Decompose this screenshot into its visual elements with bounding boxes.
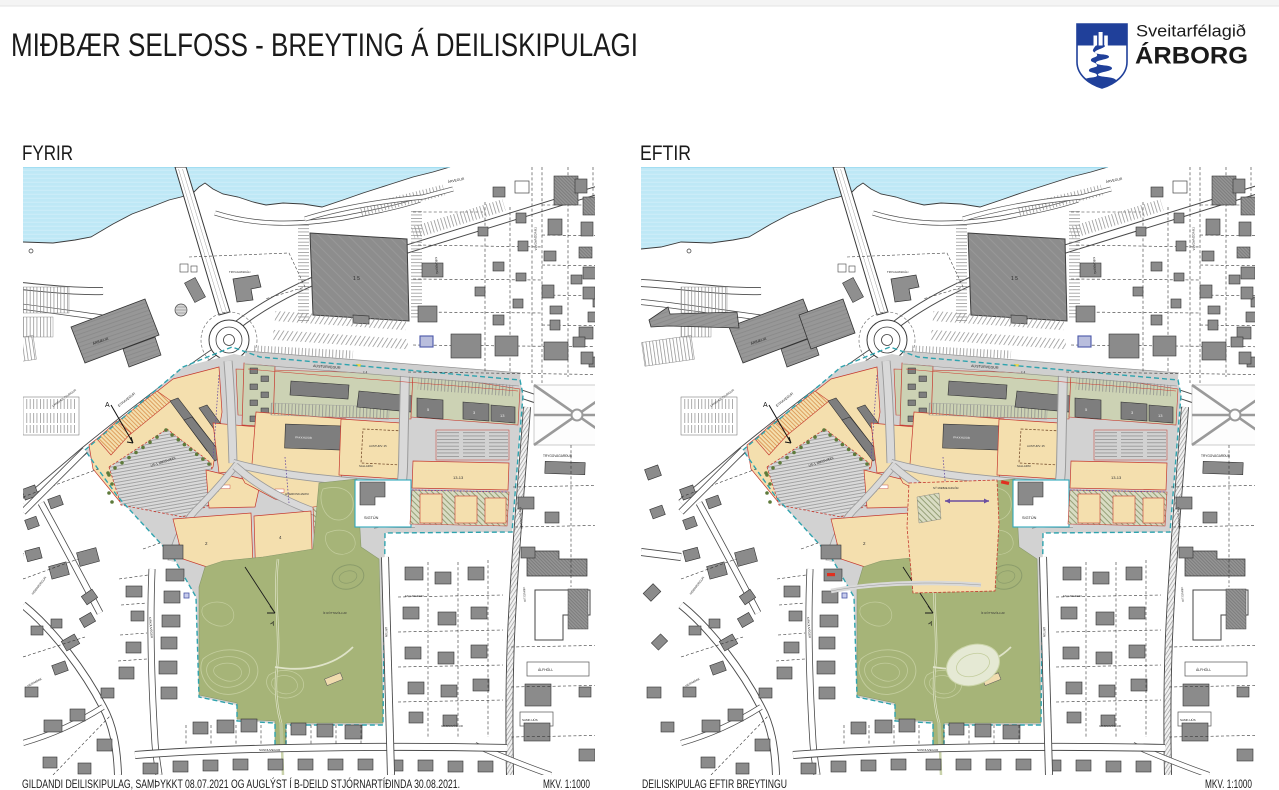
svg-text:TRYGGVAGARÐUR: TRYGGVAGARÐUR (543, 454, 573, 458)
svg-text:13-13: 13-13 (453, 475, 464, 480)
svg-text:Sveitarfélagið: Sveitarfélagið (1136, 22, 1246, 41)
svg-text:SALLARNI: SALLARNI (1017, 464, 1031, 468)
svg-text:FYRIR: FYRIR (22, 142, 73, 165)
svg-text:SAMK.HÚS: SAMK.HÚS (1180, 717, 1196, 722)
svg-text:EFTIR: EFTIR (640, 142, 691, 165)
svg-text:A: A (105, 402, 110, 409)
svg-text:13: 13 (1158, 413, 1163, 418)
svg-text:ÁRBORG: ÁRBORG (1135, 42, 1248, 70)
svg-text:MKV. 1:1000: MKV. 1:1000 (1205, 777, 1252, 790)
svg-text:AUSTURV. 25: AUSTURV. 25 (369, 444, 387, 448)
svg-text:SUNNUVEGUR: SUNNUVEGUR (259, 748, 281, 752)
svg-text:ÍÞ RÓTTAVÖLLUR: ÍÞ RÓTTAVÖLLUR (323, 610, 347, 615)
svg-text:1 5: 1 5 (353, 276, 360, 282)
svg-text:1 4: 1 4 (1021, 370, 1026, 374)
svg-text:1 5: 1 5 (1011, 276, 1018, 282)
svg-text:NÝ MIÐBÆJARLÓÐ: NÝ MIÐBÆJARLÓÐ (933, 485, 959, 490)
svg-text:13-13: 13-13 (1111, 475, 1122, 480)
svg-text:DEILISKIPULAG EFTIR BREYTINGU: DEILISKIPULAG EFTIR BREYTINGU (642, 777, 787, 790)
svg-text:ÁLFHÓLL: ÁLFHÓLL (1196, 667, 1211, 672)
svg-text:FAGURGERÐI: FAGURGERÐI (1063, 594, 1082, 598)
svg-text:ÁLFHÓLL: ÁLFHÓLL (538, 667, 553, 672)
svg-text:AUSTURV. 25: AUSTURV. 25 (1027, 444, 1045, 448)
svg-text:SIGTÚN: SIGTÚN (1022, 515, 1037, 520)
svg-text:GILDANDI DEILISKIPULAG, SAMÞYK: GILDANDI DEILISKIPULAG, SAMÞYKKT 08.07.2… (22, 776, 460, 790)
svg-text:MKV. 1:1000: MKV. 1:1000 (543, 777, 590, 790)
svg-text:PAKKHÚSIÐ: PAKKHÚSIÐ (295, 434, 313, 440)
svg-text:TRYGGVAGARÐUR: TRYGGVAGARÐUR (1201, 454, 1231, 458)
svg-text:GRÆNAVÖLLUR: GRÆNAVÖLLUR (1099, 724, 1121, 728)
svg-text:1 4: 1 4 (363, 370, 368, 374)
svg-text:SUNNUVEGUR: SUNNUVEGUR (917, 748, 939, 752)
svg-text:TRYGGVAGATA: TRYGGVAGATA (1191, 227, 1196, 251)
svg-text:SIGTÚN: SIGTÚN (364, 515, 379, 520)
svg-text:MIÐBÆR SELFOSS - BREYTING Á DE: MIÐBÆR SELFOSS - BREYTING Á DEILISKIPULA… (11, 27, 638, 63)
svg-text:SAMK.HÚS: SAMK.HÚS (522, 717, 538, 722)
svg-text:SALLARNI: SALLARNI (359, 464, 373, 468)
svg-text:FAGURGERÐI: FAGURGERÐI (405, 594, 424, 598)
svg-text:TRYGGVASKÁLI: TRYGGVASKÁLI (229, 270, 251, 274)
svg-text:ÁRTÚN: ÁRTÚN (1042, 627, 1047, 637)
svg-text:TRYGGVASKÁLI: TRYGGVASKÁLI (887, 270, 909, 274)
svg-text:A: A (763, 402, 768, 409)
svg-text:PAKKHÚSIÐ: PAKKHÚSIÐ (953, 434, 971, 440)
svg-text:GRÆNAVÖLLUR: GRÆNAVÖLLUR (441, 724, 463, 728)
svg-text:ÁRTÚN: ÁRTÚN (384, 627, 389, 637)
svg-text:ÍÞ RÓTTAVÖLLUR: ÍÞ RÓTTAVÖLLUR (981, 610, 1005, 615)
svg-text:TRYGGVAGATA: TRYGGVAGATA (533, 227, 538, 251)
svg-text:13: 13 (500, 413, 505, 418)
